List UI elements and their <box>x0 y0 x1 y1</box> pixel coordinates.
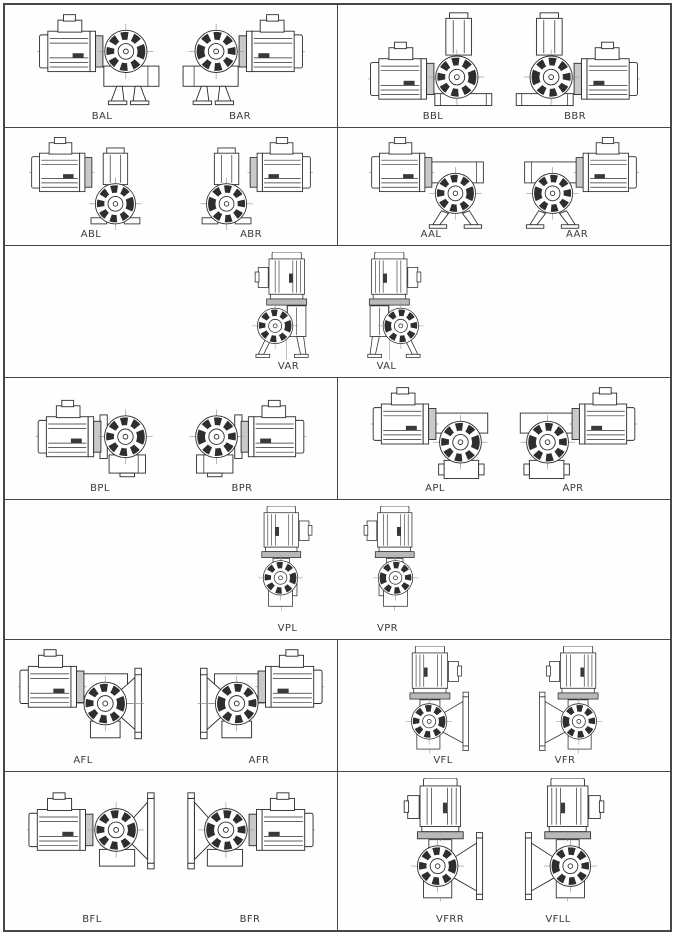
grid-cell: APL APR <box>337 378 670 499</box>
grid-cell: AAL AAR <box>337 128 670 245</box>
figure-label: VAL <box>377 362 397 377</box>
figure-label: BFL <box>82 915 101 930</box>
figure-label: ABL <box>81 230 101 245</box>
gearmotor-drawing <box>175 11 305 112</box>
mounting-figure: AAR <box>512 128 642 245</box>
figure-label: BAL <box>92 112 112 127</box>
figure-label: AFR <box>249 756 270 771</box>
mounting-figure: ABR <box>186 128 316 245</box>
figure-label: BAR <box>229 112 251 127</box>
mounting-figure: VFL <box>395 640 491 771</box>
gearmotor-drawing <box>517 646 613 756</box>
gearmotor-drawing <box>35 384 165 484</box>
figure-label: BPL <box>90 484 110 499</box>
mounting-figure: AFR <box>194 640 324 771</box>
gearmotor-drawing <box>340 252 434 362</box>
mounting-figure: BPL <box>35 378 165 499</box>
gearmotor-drawing <box>508 384 638 484</box>
gearmotor-drawing <box>27 778 157 880</box>
gearmotor-drawing <box>177 384 307 484</box>
grid-cell: VAR VAL <box>5 246 670 377</box>
mounting-figure: BBR <box>510 5 640 127</box>
figure-label: ABR <box>240 230 262 245</box>
mounting-figure: APR <box>508 378 638 499</box>
figure-label: VPL <box>278 624 298 639</box>
grid-cell: VPL VPR <box>5 500 670 639</box>
mounting-figure: VPR <box>343 500 433 639</box>
figure-label: AAR <box>566 230 588 245</box>
gearmotor-drawing <box>397 778 503 904</box>
gearmotor-drawing <box>242 252 336 362</box>
mounting-figure: BFR <box>185 772 315 930</box>
gearmotor-drawing <box>185 778 315 880</box>
figure-label: VFRR <box>436 915 464 930</box>
mounting-figure: BAL <box>37 5 167 127</box>
figure-label: VFR <box>555 756 576 771</box>
grid-cell: AFL AFR <box>5 640 337 771</box>
gearmotor-drawing <box>186 134 316 230</box>
mounting-figure: VAL <box>340 246 434 377</box>
gearmotor-drawing <box>512 134 642 230</box>
gearmotor-drawing <box>505 778 611 904</box>
grid-row: BFL BFR VFRR VFLL <box>5 772 670 930</box>
mounting-figure: VFLL <box>505 772 611 930</box>
mounting-figure: VPL <box>243 500 333 639</box>
mounting-figure: BAR <box>175 5 305 127</box>
gearmotor-drawing <box>243 506 333 613</box>
figure-label: BBR <box>564 112 586 127</box>
figure-label: VFL <box>433 756 452 771</box>
figure-label: VFLL <box>545 915 570 930</box>
mounting-figure: BFL <box>27 772 157 930</box>
mounting-figure: BBL <box>368 5 498 127</box>
mounting-figure: AAL <box>366 128 496 245</box>
gearmotor-drawing <box>370 384 500 484</box>
grid-cell: ABL ABR <box>5 128 337 245</box>
grid-cell: BBL BBR <box>337 5 670 127</box>
diagram-frame: BAL BAR BBL BBR ABL <box>3 3 672 932</box>
grid-row: VAR VAL <box>5 246 670 378</box>
figure-label: VPR <box>377 624 398 639</box>
gearmotor-drawing <box>194 646 324 748</box>
grid-cell: BPL BPR <box>5 378 337 499</box>
mounting-figure: VFR <box>517 640 613 771</box>
figure-label: BBL <box>423 112 444 127</box>
grid-cell: VFRR VFLL <box>337 772 670 930</box>
gearmotor-drawing <box>510 11 640 112</box>
mounting-figure: AFL <box>18 640 148 771</box>
figure-label: APL <box>425 484 445 499</box>
grid-cell: BFL BFR <box>5 772 337 930</box>
grid-row: BAL BAR BBL BBR <box>5 5 670 128</box>
grid-row: ABL ABR AAL AAR <box>5 128 670 246</box>
figure-label: BFR <box>240 915 261 930</box>
gearmotor-drawing <box>26 134 156 230</box>
figure-label: APR <box>562 484 583 499</box>
grid-cell: BAL BAR <box>5 5 337 127</box>
grid-row: AFL AFR VFL VFR <box>5 640 670 772</box>
gearmotor-drawing <box>18 646 148 748</box>
gearmotor-drawing <box>37 11 167 112</box>
mounting-figure: VFRR <box>397 772 503 930</box>
figure-label: BPR <box>231 484 252 499</box>
grid-row: VPL VPR <box>5 500 670 640</box>
figure-label: VAR <box>278 362 299 377</box>
mounting-figure: ABL <box>26 128 156 245</box>
grid-row: BPL BPR APL APR <box>5 378 670 500</box>
mounting-figure: APL <box>370 378 500 499</box>
mounting-figure: VAR <box>242 246 336 377</box>
gearmotor-drawing <box>343 506 433 613</box>
grid-cell: VFL VFR <box>337 640 670 771</box>
figure-label: AFL <box>73 756 92 771</box>
gearmotor-drawing <box>366 134 496 230</box>
figure-label: AAL <box>421 230 442 245</box>
gearmotor-drawing <box>395 646 491 756</box>
mounting-figure: BPR <box>177 378 307 499</box>
gearmotor-drawing <box>368 11 498 112</box>
